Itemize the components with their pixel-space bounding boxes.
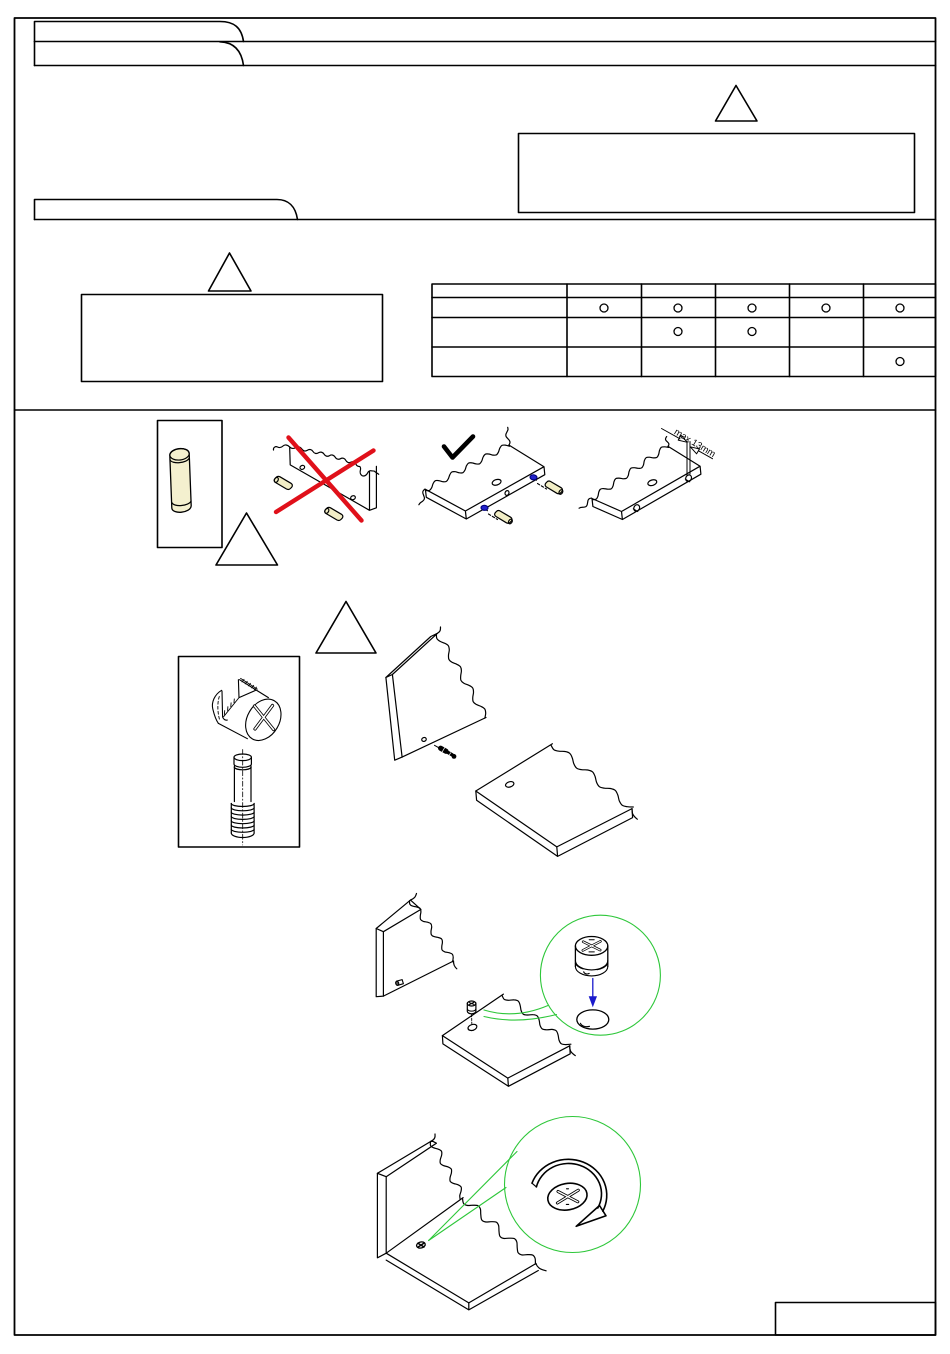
svg-text:max.13mm: max.13mm (672, 426, 718, 459)
